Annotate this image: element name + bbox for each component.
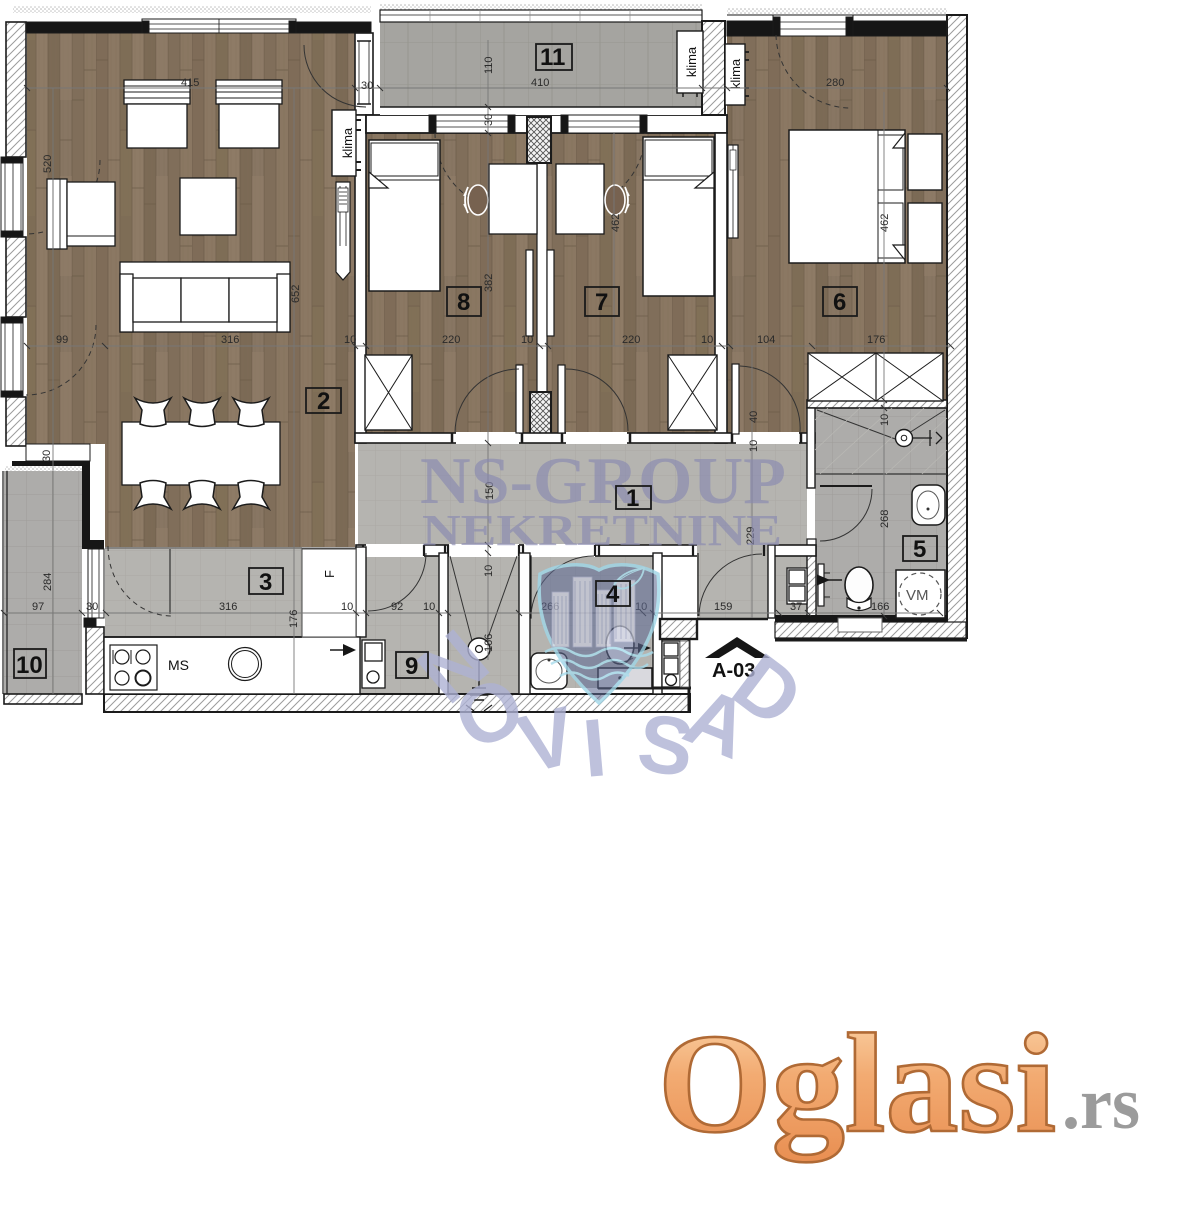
svg-text:klima: klima: [684, 46, 699, 77]
svg-text:F: F: [322, 570, 337, 578]
svg-text:97: 97: [32, 601, 44, 613]
svg-text:220: 220: [442, 334, 460, 346]
svg-text:40: 40: [748, 411, 760, 423]
svg-text:klima: klima: [728, 58, 743, 89]
svg-text:462: 462: [610, 214, 622, 232]
svg-text:6: 6: [833, 289, 846, 316]
svg-text:462: 462: [879, 214, 891, 232]
svg-text:99: 99: [56, 334, 68, 346]
svg-text:110: 110: [483, 56, 495, 74]
svg-text:VM: VM: [906, 587, 929, 604]
svg-text:316: 316: [221, 334, 239, 346]
svg-text:2: 2: [317, 388, 330, 415]
svg-text:10: 10: [16, 652, 43, 679]
svg-text:284: 284: [42, 573, 54, 591]
svg-text:30: 30: [86, 601, 98, 613]
svg-text:166: 166: [483, 634, 495, 652]
svg-text:520: 520: [42, 155, 54, 173]
svg-text:MS: MS: [168, 657, 189, 673]
svg-text:10: 10: [701, 334, 713, 346]
svg-text:10: 10: [521, 334, 533, 346]
svg-text:30: 30: [361, 80, 373, 92]
svg-text:316: 316: [219, 601, 237, 613]
svg-text:10: 10: [344, 334, 356, 346]
svg-text:220: 220: [622, 334, 640, 346]
svg-text:10: 10: [341, 601, 353, 613]
svg-text:166: 166: [871, 601, 889, 613]
svg-text:11: 11: [540, 44, 565, 71]
svg-text:.rs: .rs: [1062, 1063, 1140, 1145]
svg-text:4: 4: [606, 581, 620, 608]
svg-text:415: 415: [181, 77, 199, 89]
svg-text:Oglasi: Oglasi: [658, 1004, 1056, 1162]
svg-text:9: 9: [405, 653, 418, 680]
svg-text:159: 159: [714, 601, 732, 613]
svg-text:104: 104: [757, 334, 775, 346]
svg-text:37: 37: [790, 601, 802, 613]
svg-text:klima: klima: [340, 127, 355, 158]
svg-text:7: 7: [595, 289, 608, 316]
svg-text:410: 410: [531, 77, 549, 89]
svg-text:1: 1: [626, 485, 639, 512]
svg-text:NEKRETNINE: NEKRETNINE: [422, 506, 782, 555]
svg-text:5: 5: [913, 536, 926, 563]
svg-text:176: 176: [288, 610, 300, 628]
svg-text:10: 10: [879, 414, 891, 426]
svg-text:280: 280: [826, 77, 844, 89]
svg-text:268: 268: [879, 510, 891, 528]
svg-text:8: 8: [457, 289, 470, 316]
svg-text:3: 3: [259, 569, 272, 596]
svg-text:652: 652: [290, 285, 302, 303]
svg-text:30: 30: [41, 450, 53, 462]
svg-text:382: 382: [483, 274, 495, 292]
svg-text:30: 30: [483, 114, 495, 126]
svg-text:10: 10: [483, 565, 495, 577]
svg-text:10: 10: [423, 601, 435, 613]
svg-text:176: 176: [867, 334, 885, 346]
svg-text:92: 92: [391, 601, 403, 613]
